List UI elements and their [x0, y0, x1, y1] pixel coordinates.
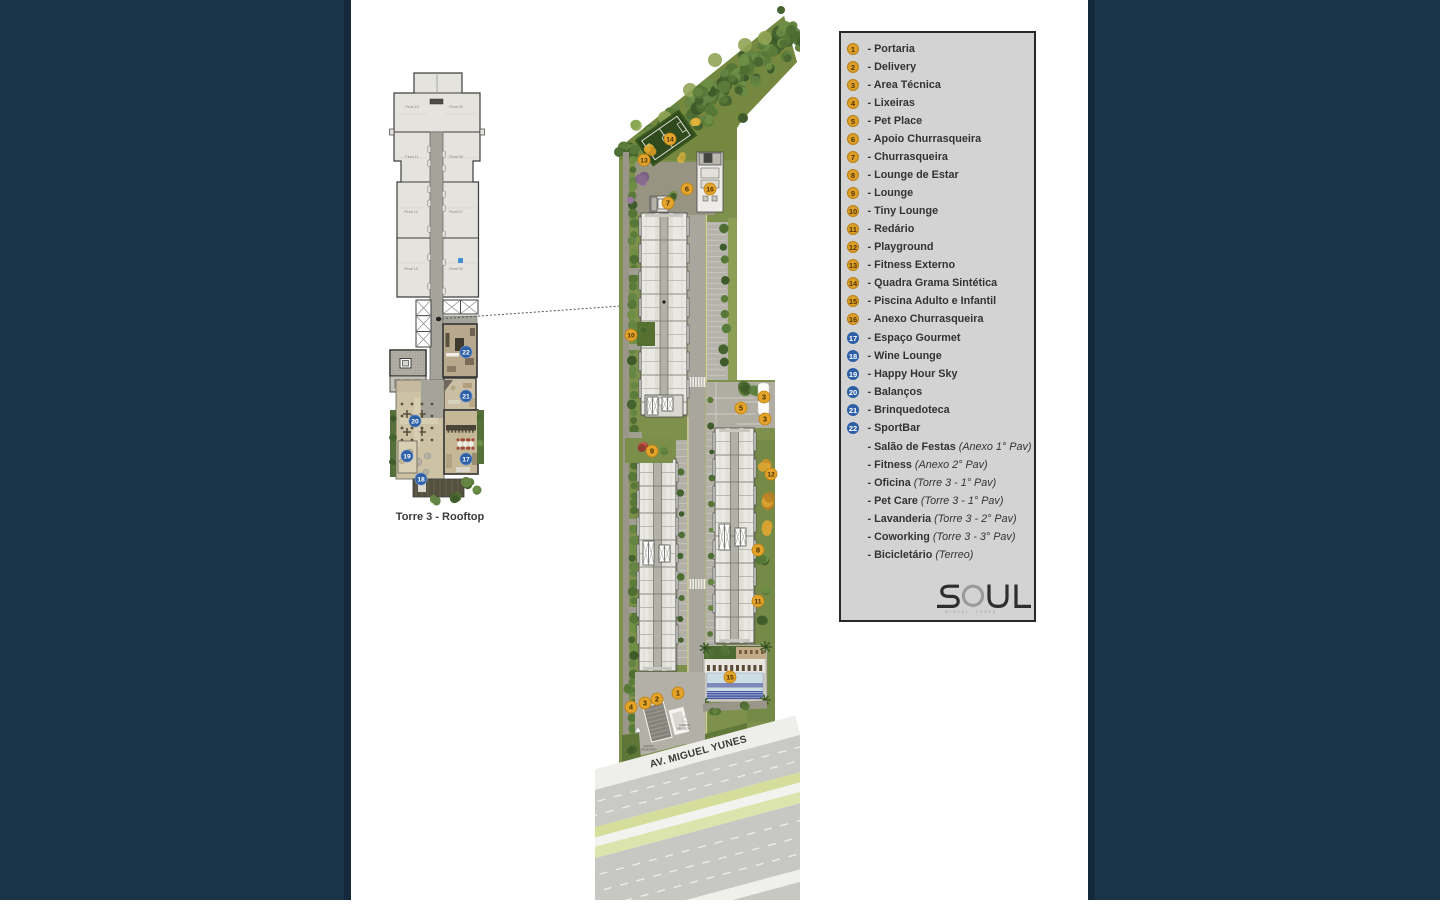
svg-text:Final 10: Final 10: [405, 105, 419, 109]
svg-text:19: 19: [403, 453, 411, 460]
svg-text:6: 6: [685, 184, 689, 193]
svg-text:8: 8: [756, 545, 760, 554]
svg-text:3: 3: [643, 698, 647, 707]
svg-text:ACESSO: ACESSO: [643, 744, 654, 748]
svg-text:14: 14: [666, 136, 674, 143]
svg-text:17: 17: [462, 456, 470, 463]
svg-text:Final 13: Final 13: [404, 267, 418, 271]
svg-text:Final 09: Final 09: [449, 105, 463, 109]
svg-text:Final 06: Final 06: [449, 267, 463, 271]
svg-text:7: 7: [666, 198, 670, 207]
svg-text:PEDESTRES: PEDESTRES: [641, 747, 657, 751]
svg-text:5: 5: [739, 403, 743, 412]
svg-text:12: 12: [767, 471, 775, 478]
svg-text:20: 20: [411, 418, 419, 425]
svg-text:13: 13: [640, 157, 648, 164]
svg-text:3: 3: [762, 392, 766, 401]
svg-text:Final 08: Final 08: [449, 155, 463, 159]
svg-text:16: 16: [706, 186, 714, 193]
svg-text:ACESSO: ACESSO: [679, 723, 690, 727]
svg-text:11: 11: [754, 598, 761, 605]
svg-text:22: 22: [462, 349, 470, 356]
svg-text:2: 2: [655, 694, 659, 703]
svg-text:10: 10: [627, 332, 635, 339]
svg-text:3: 3: [763, 414, 767, 423]
svg-text:1: 1: [676, 688, 680, 697]
svg-text:9: 9: [650, 446, 654, 455]
svg-text:Final 07: Final 07: [449, 210, 463, 214]
svg-text:15: 15: [726, 674, 734, 681]
svg-text:Final 12: Final 12: [404, 210, 418, 214]
svg-text:18: 18: [417, 476, 425, 483]
svg-text:VEICULOS: VEICULOS: [677, 726, 690, 730]
svg-text:Final 11: Final 11: [405, 155, 418, 159]
svg-text:21: 21: [462, 393, 470, 400]
